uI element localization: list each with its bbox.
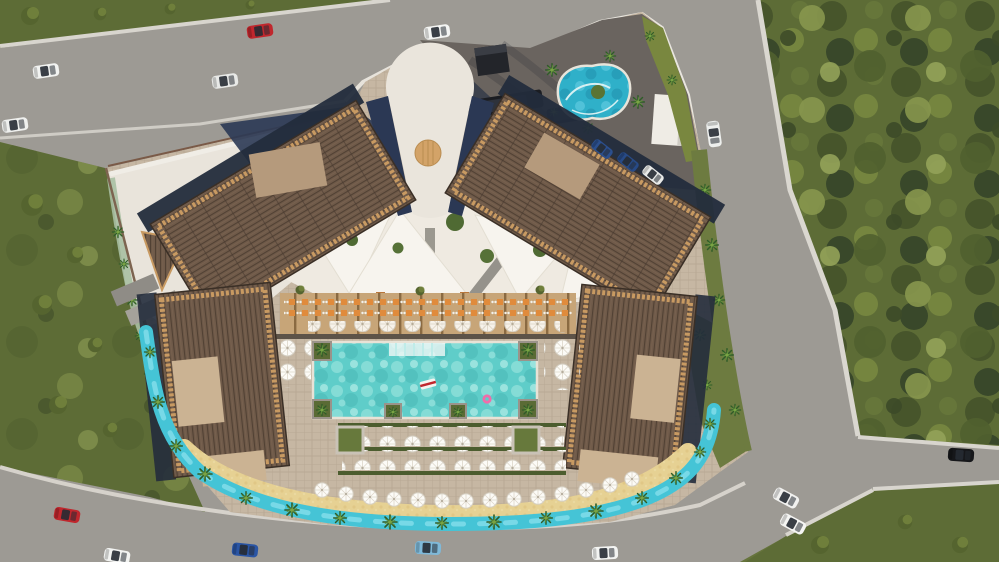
umbrella-icon [363, 490, 377, 504]
dining-tables-row1 [284, 298, 572, 306]
dining-tables-row2 [284, 310, 572, 318]
car [592, 546, 619, 560]
hedge-row [338, 471, 566, 475]
car-body [592, 546, 619, 560]
palm-tree [704, 418, 715, 429]
palm-tree [522, 344, 535, 357]
scene-canvas [0, 0, 999, 562]
palm-tree [285, 503, 299, 517]
pool-steps [389, 343, 445, 356]
courtyard-tree [480, 249, 494, 263]
bush [21, 7, 39, 25]
courtyard-tree [393, 243, 404, 254]
umbrella-icon [507, 492, 521, 506]
umbrella-icon [483, 493, 497, 507]
bush [32, 295, 52, 315]
umbrella-icon [387, 492, 401, 506]
bush [103, 423, 117, 437]
palm-tree [487, 515, 501, 529]
umbrella-icon [435, 494, 449, 508]
palm-tree [721, 349, 734, 362]
palm-tree [240, 492, 253, 505]
main-pool-area [313, 342, 537, 418]
palm-tree [546, 64, 559, 77]
palm-tree [667, 75, 677, 85]
bush [536, 286, 545, 295]
palm-tree [316, 344, 329, 357]
umbrella-icon [411, 493, 425, 507]
palm-tree [589, 504, 603, 518]
dining-terrace [276, 286, 580, 340]
car [231, 542, 258, 558]
umbrella-icon [339, 487, 353, 501]
dining-chairs-row [308, 321, 560, 332]
umbrella-icon [459, 494, 473, 508]
flat-canopy [630, 355, 680, 423]
palm-tree [316, 404, 327, 415]
palm-tree [144, 346, 155, 357]
service-kiosk [474, 44, 510, 76]
palm-tree [119, 259, 129, 269]
palm-tree [713, 294, 724, 305]
palm-tree [436, 517, 449, 530]
car-body [415, 541, 442, 555]
car [415, 541, 442, 555]
palm-tree [152, 396, 165, 409]
square-planter [337, 427, 363, 453]
palm-tree [112, 226, 123, 237]
car-body [948, 448, 975, 463]
bush [49, 396, 67, 414]
palm-tree [198, 467, 212, 481]
palm-tree [604, 50, 615, 61]
bush [94, 8, 107, 21]
bush [811, 536, 829, 554]
umbrella-icon [555, 487, 569, 501]
umbrella-cluster-west [281, 334, 311, 388]
palm-tree [540, 512, 553, 525]
bush [952, 537, 968, 553]
bush [296, 286, 305, 295]
resort-aerial-render [0, 0, 999, 562]
umbrella-icon [531, 490, 545, 504]
palm-tree [632, 96, 645, 109]
palm-tree [706, 239, 719, 252]
flat-canopy [172, 356, 225, 426]
palm-tree [522, 404, 533, 415]
bush [898, 515, 912, 529]
bush [246, 1, 255, 10]
umbrella-icon [579, 483, 593, 497]
bush [88, 338, 102, 352]
pool-float-ring [482, 394, 491, 403]
dining-deck-edge [276, 334, 580, 339]
lagoon-island [591, 85, 605, 99]
palm-tree [170, 440, 183, 453]
palm-tree [636, 492, 649, 505]
palm-tree [383, 515, 397, 529]
palm-tree [645, 31, 655, 41]
bush [165, 4, 176, 15]
umbrella-icon [625, 472, 639, 486]
palm-tree [694, 446, 705, 457]
car-body [231, 542, 258, 558]
palm-tree [729, 404, 740, 415]
bush [21, 194, 43, 216]
palm-tree [453, 407, 463, 417]
palm-tree [388, 407, 398, 417]
palm-tree [670, 472, 683, 485]
bush [67, 247, 83, 263]
umbrella-icon [603, 478, 617, 492]
palm-tree [334, 512, 347, 525]
car [948, 448, 975, 463]
square-planter [513, 427, 539, 453]
bush [416, 287, 425, 296]
umbrella-icon [315, 483, 329, 497]
umbrella-cluster-east [544, 332, 580, 390]
